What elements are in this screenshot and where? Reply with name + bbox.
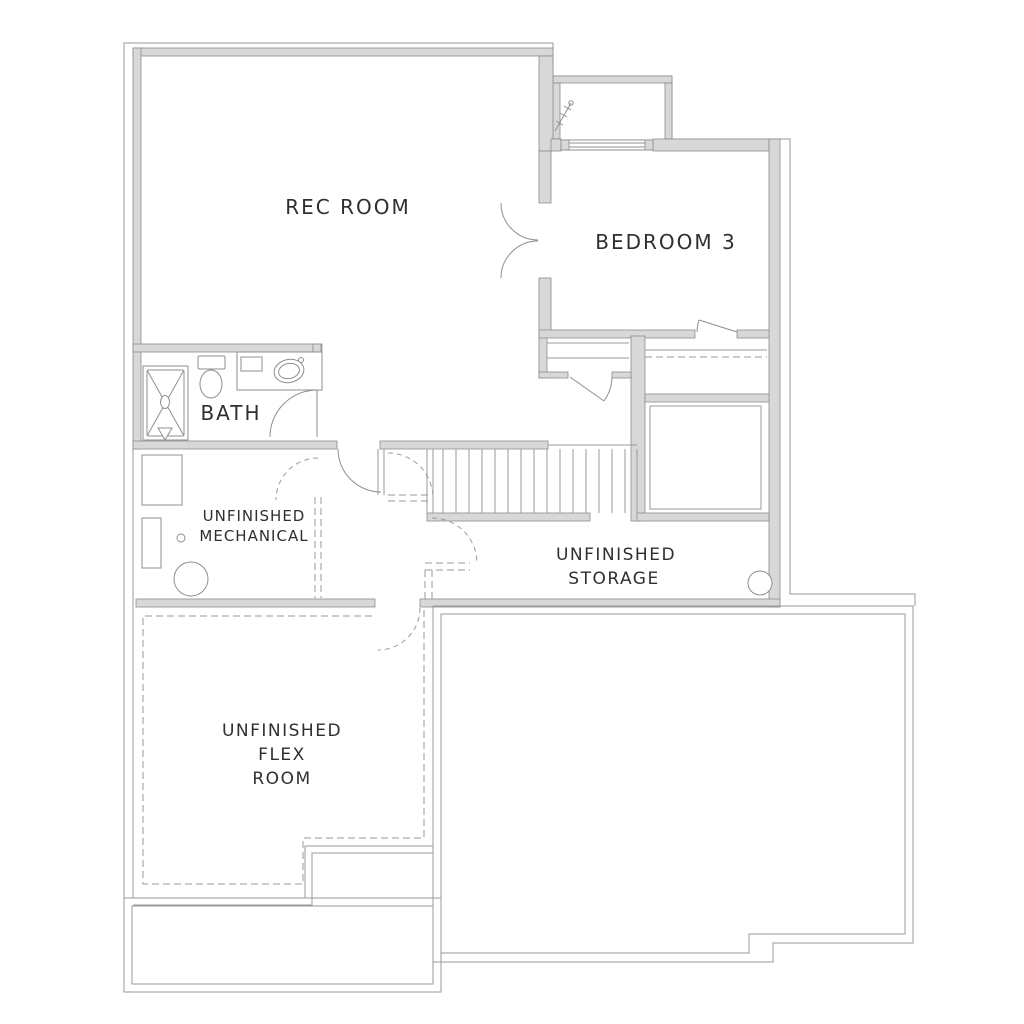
corridor-door-swing xyxy=(388,453,433,498)
storage-label-line2: STORAGE xyxy=(568,569,659,589)
under-closet-room xyxy=(650,406,761,509)
bedroom-left-wall-upper xyxy=(539,151,551,203)
flex-label-line3: ROOM xyxy=(252,769,311,789)
fixtures xyxy=(142,352,772,596)
bath-door xyxy=(270,390,317,437)
future-walls xyxy=(143,357,767,884)
stairs xyxy=(443,449,637,513)
hall-closet-door xyxy=(570,377,612,401)
understair-door-swing xyxy=(432,518,477,563)
mechanical-door-swing xyxy=(276,458,318,500)
flex-label-line2: FLEX xyxy=(258,745,306,765)
stair-top-wall xyxy=(380,441,548,449)
bedroom-door-leaf-bottom xyxy=(501,241,538,278)
flex-step-wall-inner xyxy=(133,853,433,905)
future-door-swings xyxy=(276,453,477,650)
stair-left-wall xyxy=(427,449,433,513)
understair-future-wall xyxy=(425,563,470,599)
rec-room-top-wall xyxy=(133,48,553,56)
flex-top-wall xyxy=(136,599,375,607)
floor-plan: REC ROOM BEDROOM 3 BATH UNFINISHED MECHA… xyxy=(0,0,1024,1024)
bedroom3-label: BEDROOM 3 xyxy=(595,230,736,254)
corridor-wall-stub xyxy=(378,449,384,495)
rec-room-label: REC ROOM xyxy=(285,195,411,219)
corridor-future-wall xyxy=(388,495,428,501)
bath-bottom-wall xyxy=(133,441,337,449)
support-column-icon xyxy=(748,571,772,595)
closet-bottom-wall-right xyxy=(612,372,631,378)
bedroom-bottom-wall-right xyxy=(737,330,769,338)
water-softener-icon xyxy=(142,518,161,568)
flex-step-wall-outer xyxy=(133,846,433,898)
porch-outer xyxy=(124,898,441,992)
hall-door xyxy=(338,449,381,492)
flex-door-swing xyxy=(378,608,420,650)
window-well-right-wall xyxy=(665,83,672,139)
window-well-top-wall xyxy=(553,76,672,83)
porch-inner xyxy=(132,906,433,984)
bedroom-door-leaf-top xyxy=(501,203,538,240)
left-wall xyxy=(133,48,141,449)
floor-drain-icon xyxy=(177,534,185,542)
closet-divider-wall xyxy=(631,336,645,521)
stair-bottom-wall-left xyxy=(427,513,590,521)
mechanical-label-line2: MECHANICAL xyxy=(199,527,308,545)
flex-label-line1: UNFINISHED xyxy=(222,721,342,741)
bath-top-wall xyxy=(133,344,322,352)
right-closet-bottom-wall xyxy=(645,394,769,402)
bedroom-top-wall-left xyxy=(551,139,561,151)
toilet-icon xyxy=(198,356,225,398)
slab-room-outer xyxy=(433,606,913,962)
vanity-sink-icon xyxy=(237,352,322,390)
furnace-icon xyxy=(142,455,182,505)
mechanical-future-wall xyxy=(315,497,321,598)
bedroom-top-wall-right xyxy=(653,139,769,151)
bedroom-bottom-wall-left xyxy=(539,330,695,338)
room-labels: REC ROOM BEDROOM 3 BATH UNFINISHED MECHA… xyxy=(199,195,736,789)
bedroom-left-wall-lower xyxy=(539,278,551,336)
water-heater-icon xyxy=(174,562,208,596)
storage-label-line1: UNFINISHED xyxy=(556,545,676,565)
egress-window-icon xyxy=(561,140,653,150)
window-well-left-wall xyxy=(553,83,560,139)
foundation-outline xyxy=(124,43,915,898)
closet-bottom-wall-left xyxy=(539,372,568,378)
foundation-outline-top xyxy=(124,43,915,898)
floor-plan-drawing: REC ROOM BEDROOM 3 BATH UNFINISHED MECHA… xyxy=(0,0,1024,1024)
thin-walls xyxy=(124,343,913,992)
window-well xyxy=(553,76,672,139)
mechanical-label-line1: UNFINISHED xyxy=(203,507,306,525)
bedroom-closet-door xyxy=(697,320,737,332)
stair-bottom-wall-right xyxy=(637,513,769,521)
rec-room-right-wall-upper xyxy=(539,56,553,151)
right-wall xyxy=(769,139,780,607)
slab-room-inner xyxy=(441,614,905,953)
left-closet-shelf xyxy=(547,343,629,358)
bath-label: BATH xyxy=(200,401,261,425)
shower-icon xyxy=(143,366,188,440)
